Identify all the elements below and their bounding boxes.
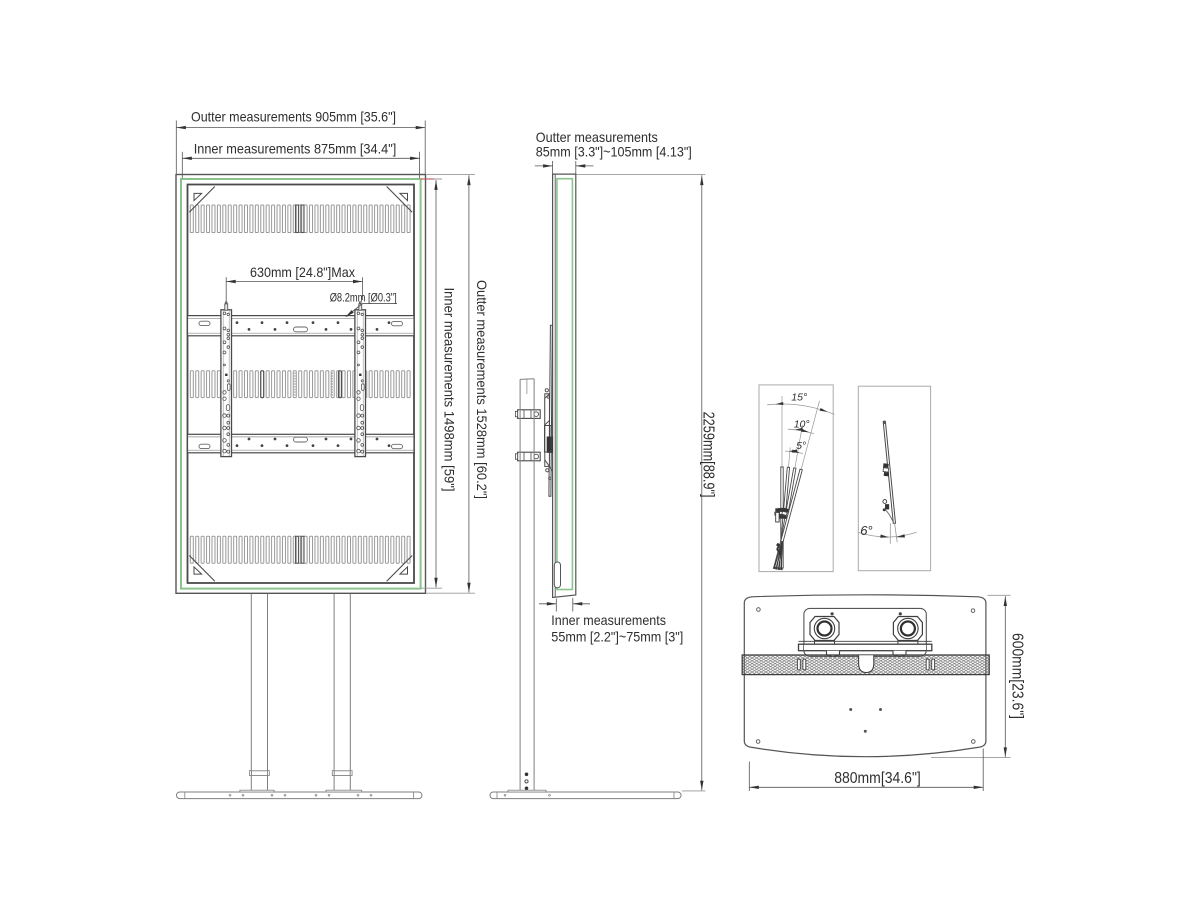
svg-text:5°: 5° bbox=[796, 440, 806, 452]
svg-text:Inner measurements 1498mm [59: Inner measurements 1498mm [59"] bbox=[441, 288, 457, 492]
svg-text:Outter measurements: Outter measurements bbox=[536, 129, 658, 145]
svg-text:Outter measurements 905mm [35.: Outter measurements 905mm [35.6"] bbox=[191, 108, 396, 124]
svg-text:85mm [3.3"]~105mm [4.13"]: 85mm [3.3"]~105mm [4.13"] bbox=[536, 144, 692, 160]
svg-text:15°: 15° bbox=[791, 391, 807, 403]
svg-text:6°: 6° bbox=[860, 523, 872, 538]
svg-text:10°: 10° bbox=[794, 419, 810, 431]
svg-text:630mm [24.8"]Max: 630mm [24.8"]Max bbox=[250, 264, 355, 280]
svg-text:2259mm[88.9"]: 2259mm[88.9"] bbox=[700, 412, 717, 498]
svg-text:55mm [2.2"]~75mm [3"]: 55mm [2.2"]~75mm [3"] bbox=[551, 628, 683, 644]
svg-text:Inner measurements 875mm [34.: Inner measurements 875mm [34.4"] bbox=[194, 141, 397, 157]
svg-text:600mm[23.6"]: 600mm[23.6"] bbox=[1009, 633, 1026, 719]
svg-text:Ø8.2mm [Ø0.3"]: Ø8.2mm [Ø0.3"] bbox=[330, 291, 397, 305]
svg-text:880mm[34.6"]: 880mm[34.6"] bbox=[834, 770, 921, 787]
svg-text:Inner measurements: Inner measurements bbox=[551, 612, 666, 628]
svg-text:Outter measurements 1528mm [6: Outter measurements 1528mm [60.2"] bbox=[474, 280, 490, 499]
